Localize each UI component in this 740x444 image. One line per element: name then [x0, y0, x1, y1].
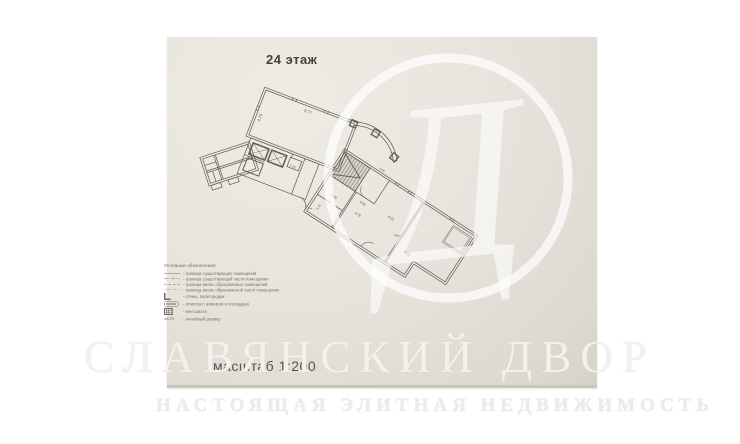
legend-line-dotted-icon [164, 290, 180, 291]
listing-photo-page: { "photo": { "floor_label": "24 этаж", "… [0, 0, 740, 444]
legend-item: вентшахта [163, 308, 285, 316]
floor-title: 24 этаж [266, 52, 317, 67]
legend-line-solid-icon [164, 273, 180, 274]
tagline-watermark: НАСТОЯЩАЯ ЭЛИТНАЯ НЕДВИЖИМОСТЬ [130, 395, 740, 417]
legend-wall-corner-icon [164, 293, 171, 300]
legend-item: отметка с номером и площадью [163, 300, 285, 308]
legend-line-dashdot-icon [164, 279, 180, 280]
brand-watermark: СЛАВЯНСКИЙ ДВОР [0, 331, 740, 383]
legend-oval-stamp-icon [164, 301, 179, 307]
legend-line-dashed-icon [164, 284, 180, 285]
legend-title: Условные обозначения [164, 263, 285, 268]
legend-item: 18.29 линейный размер [163, 315, 285, 323]
legend-vent-grid-icon [164, 308, 173, 315]
legend-item: стены, перегородки [163, 293, 285, 301]
legend-dimension-sample: 18.29 [164, 317, 174, 322]
